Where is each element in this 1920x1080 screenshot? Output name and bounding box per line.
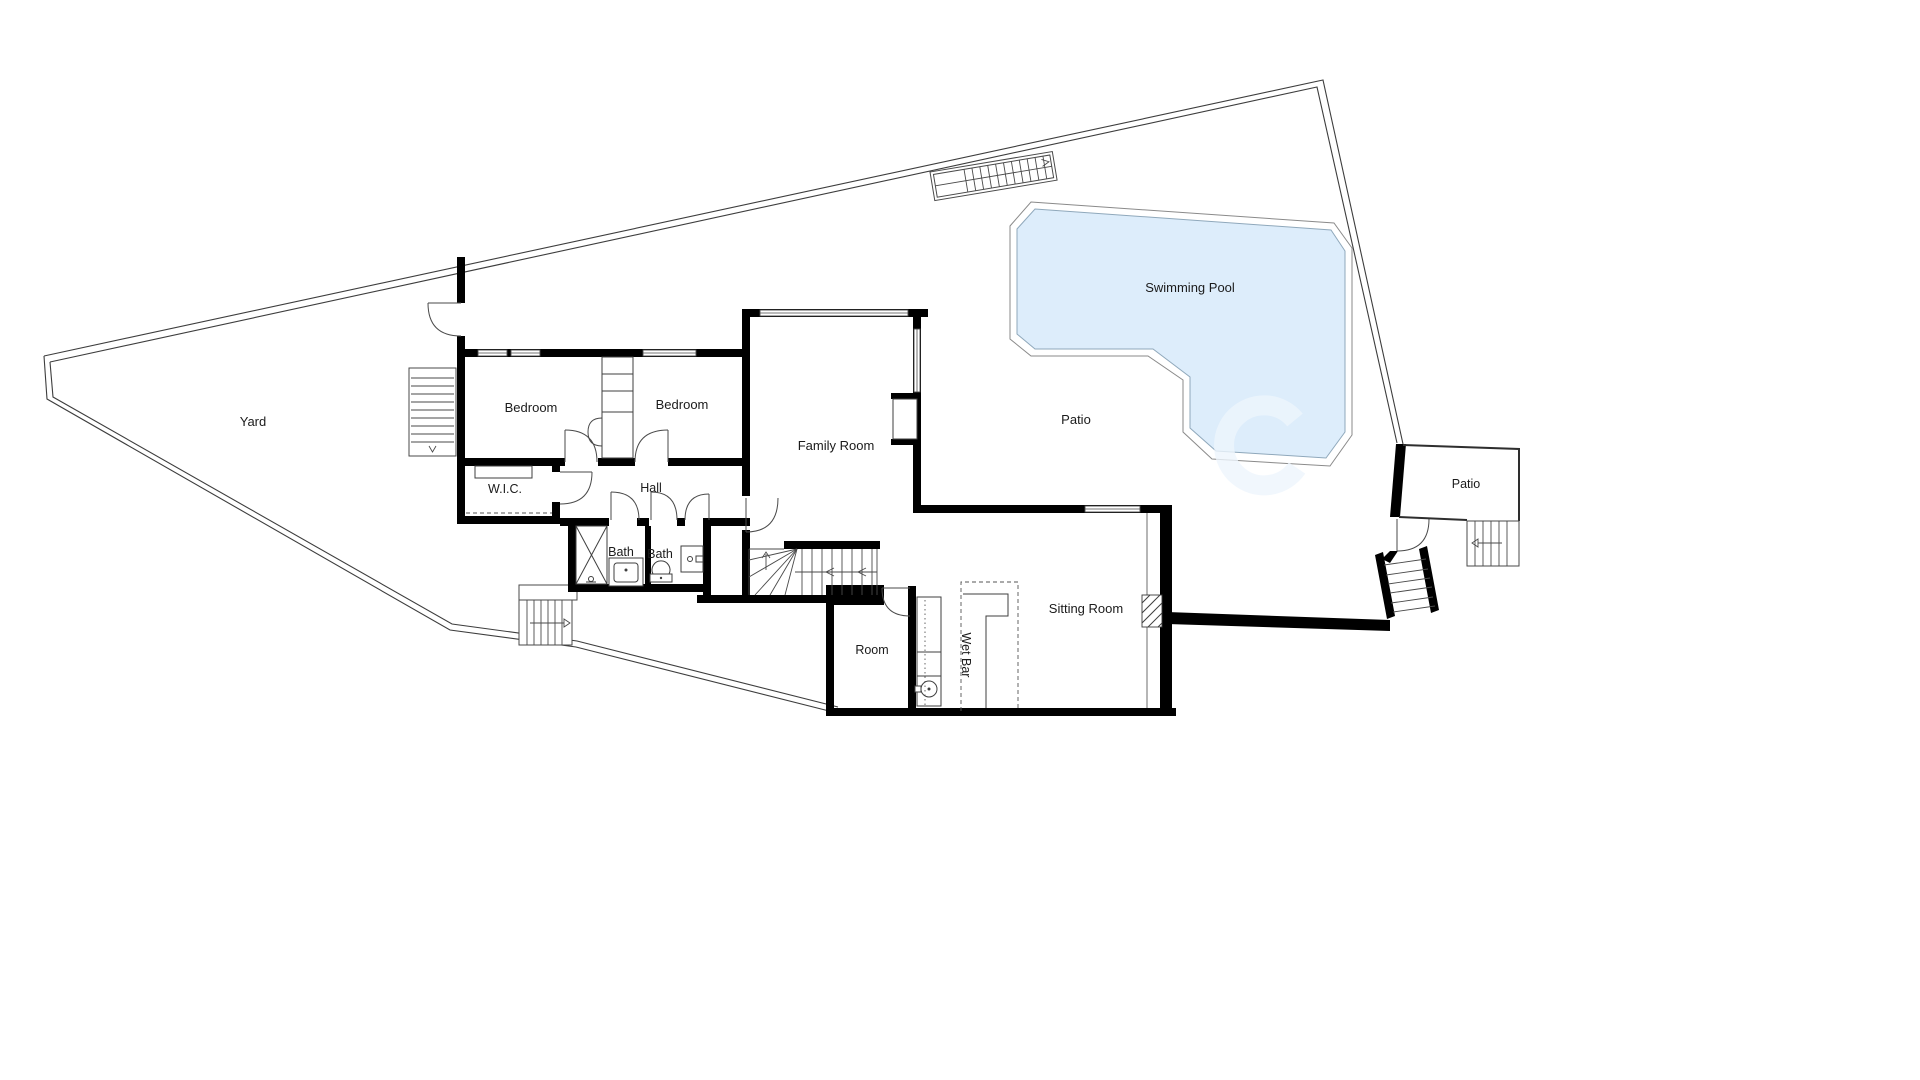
floor-plan-page: Yard Bedroom Bedroom W.I.C. Hall Bath Ba… xyxy=(0,0,1920,1080)
room-label-bedroom-left: Bedroom xyxy=(505,400,558,415)
room-label-wic: W.I.C. xyxy=(488,482,522,496)
stairs-left-yard xyxy=(409,368,456,456)
room-label-patio-main: Patio xyxy=(1061,412,1091,427)
room-label-wet-bar: Wet Bar xyxy=(959,633,973,678)
closet-between-bedrooms xyxy=(602,357,633,458)
fireplace-niche xyxy=(891,393,921,445)
room-label-yard: Yard xyxy=(240,414,267,429)
room-label-swimming-pool: Swimming Pool xyxy=(1145,280,1235,295)
room-label-family-room: Family Room xyxy=(798,438,875,453)
bath-fixtures xyxy=(576,526,703,586)
room-label-sitting-room: Sitting Room xyxy=(1049,601,1123,616)
room-label-bedroom-right: Bedroom xyxy=(656,397,709,412)
patio-right-structure xyxy=(1399,445,1519,566)
floor-plan-canvas: Yard Bedroom Bedroom W.I.C. Hall Bath Ba… xyxy=(0,0,1920,1080)
room-label-room: Room xyxy=(855,643,888,657)
stairs-top-yard xyxy=(930,152,1057,201)
room-label-bath-right: Bath xyxy=(647,547,673,561)
stairs-bottom-left xyxy=(519,585,577,645)
room-label-patio-right: Patio xyxy=(1452,477,1481,491)
sitting-room-fireplace xyxy=(1142,513,1162,708)
room-label-hall: Hall xyxy=(640,481,662,495)
room-label-bath-left: Bath xyxy=(608,545,634,559)
swimming-pool xyxy=(1010,202,1352,485)
